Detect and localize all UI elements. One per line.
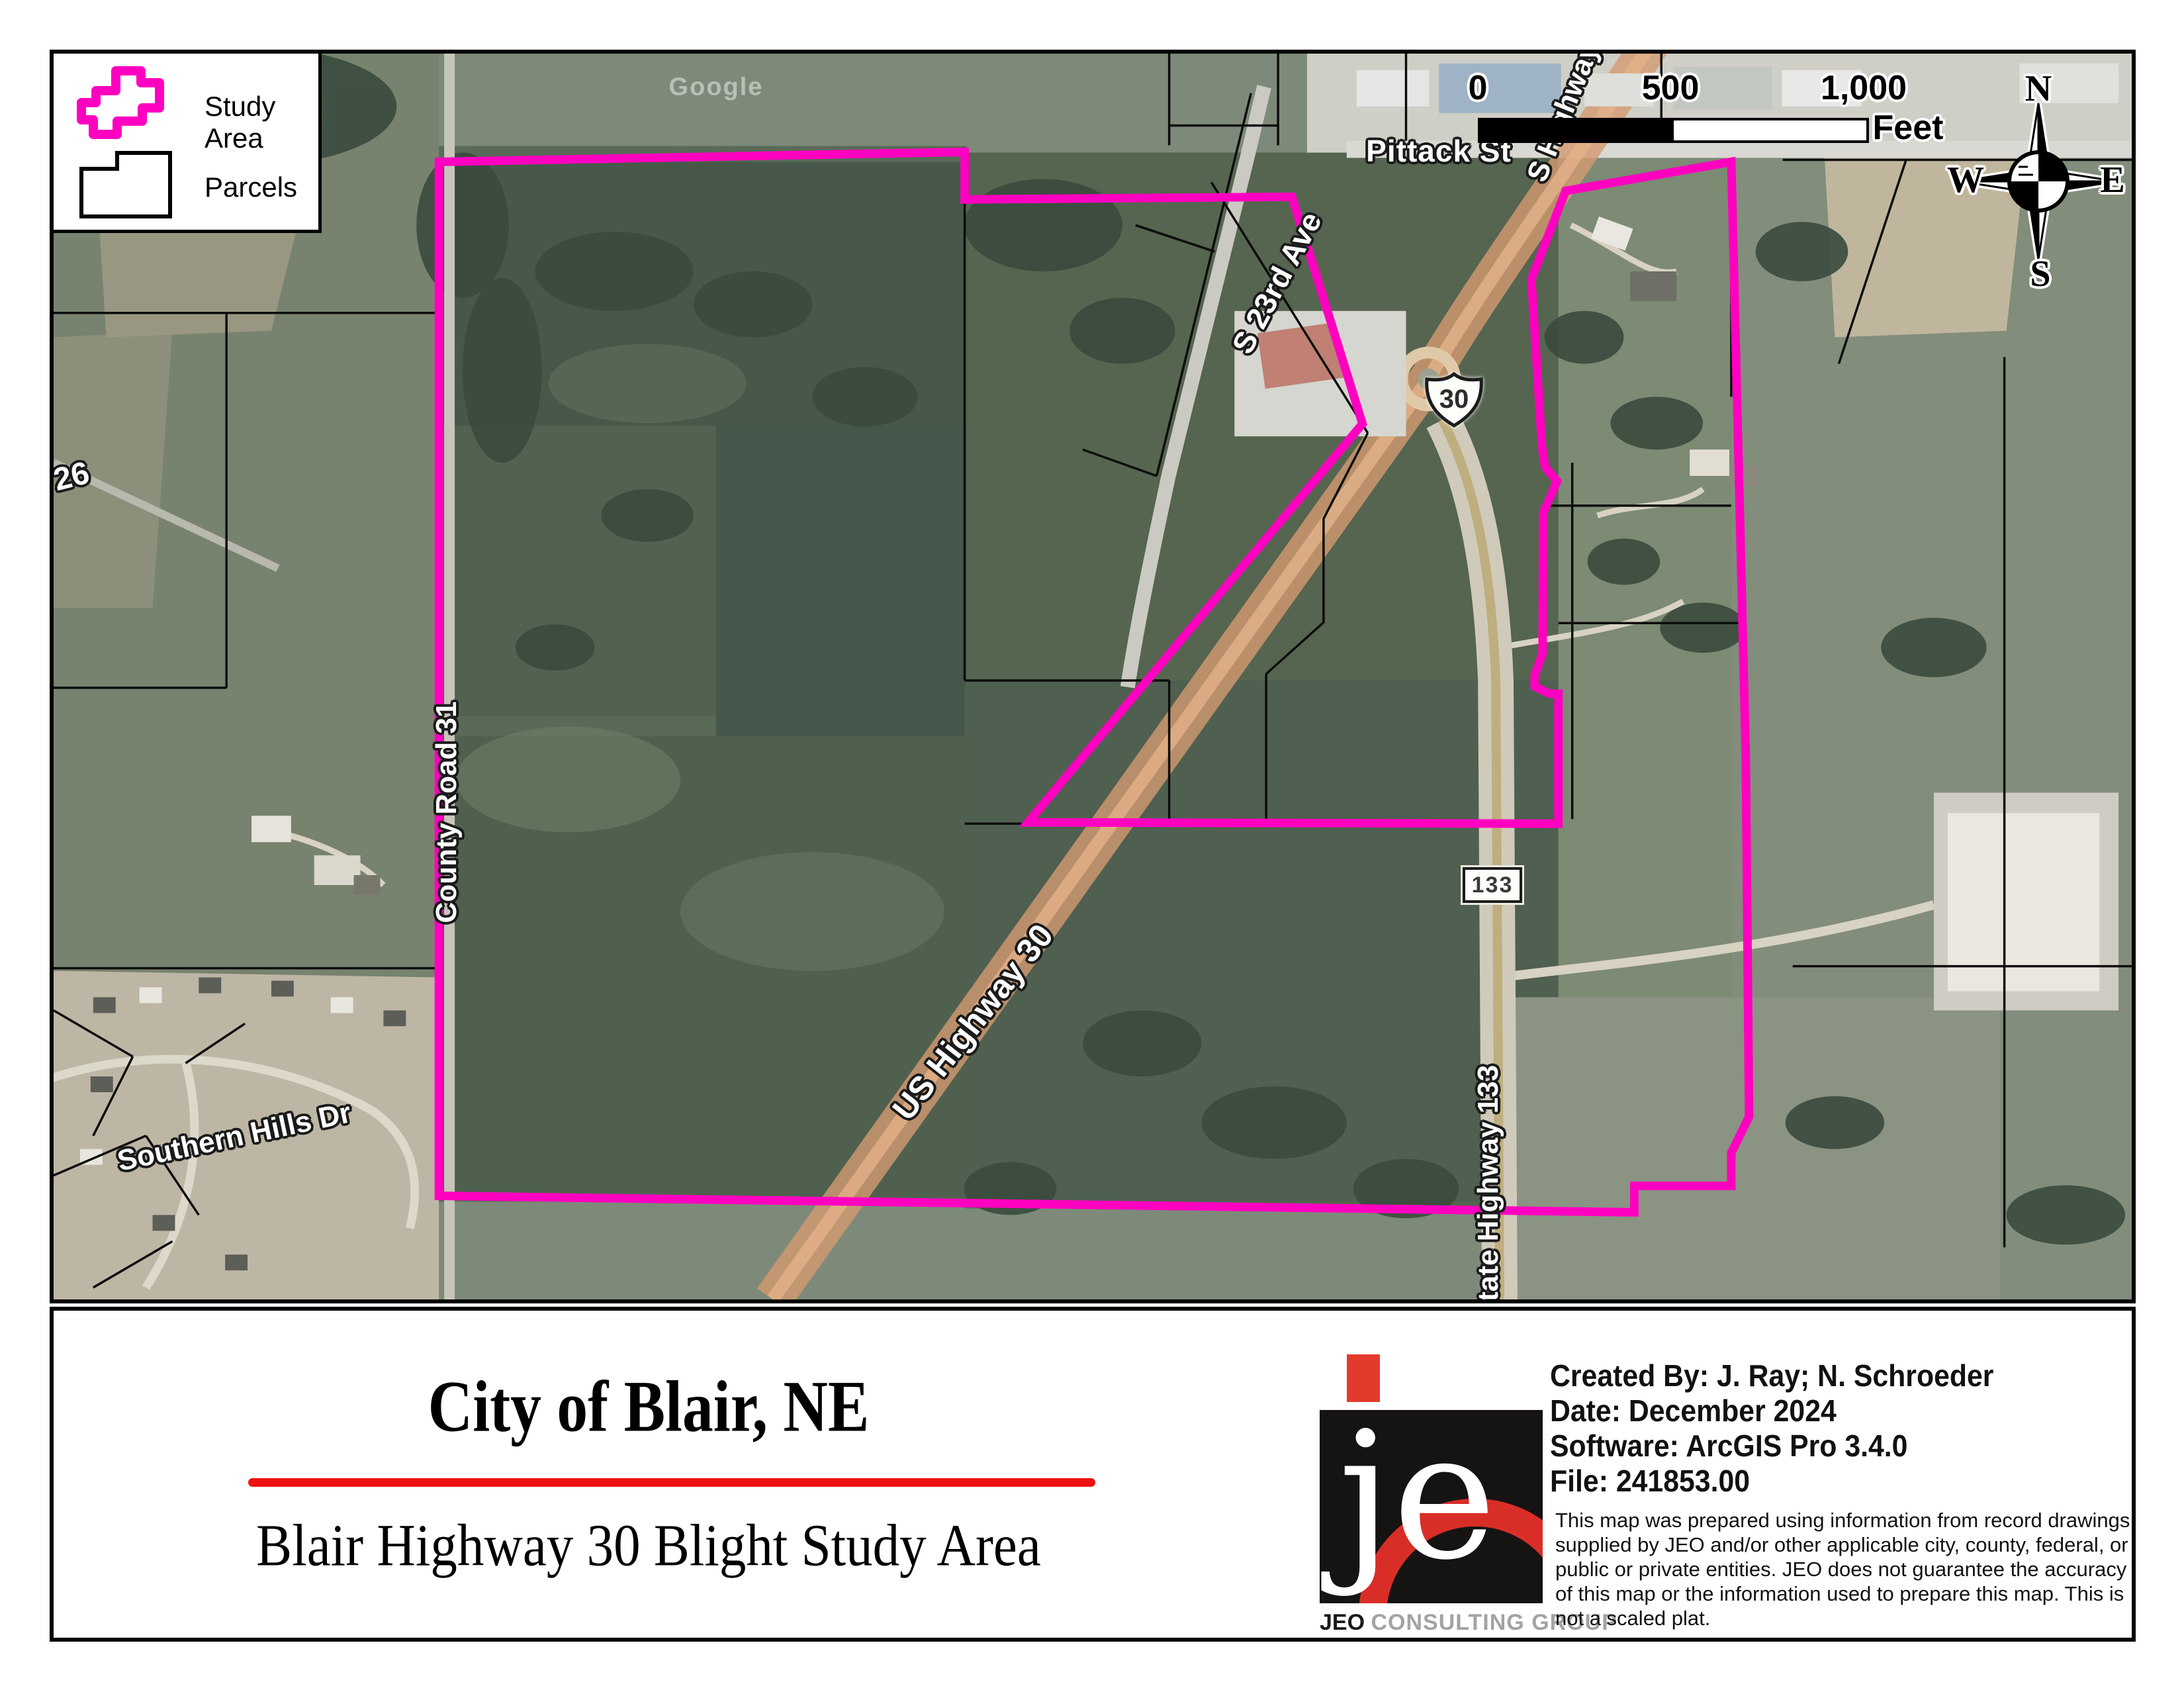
parcels-legend-icon <box>67 146 199 226</box>
svg-text:je: je <box>1320 1410 1496 1599</box>
map-sheet: Google S Highway 30 Pittack St S 23rd Av… <box>0 0 2184 1688</box>
scale-unit-label: Feet <box>1873 108 1944 148</box>
scale-tick-1000: 1,000 <box>1821 68 1907 108</box>
jeo-logo-icon: je <box>1320 1410 1543 1603</box>
map-canvas[interactable]: Google S Highway 30 Pittack St S 23rd Av… <box>50 50 2136 1303</box>
credit-file: File: 241853.00 <box>1550 1464 1993 1499</box>
credit-software: Software: ArcGIS Pro 3.4.0 <box>1550 1429 1993 1464</box>
legend: Study Area Parcels <box>54 54 322 233</box>
scale-tick-0: 0 <box>1469 68 1488 108</box>
state-highway-133-shield-icon: 133 <box>1463 867 1522 903</box>
road-label-county-road-31: County Road 31 <box>430 702 463 923</box>
jeo-logo-wordmark: JEO CONSULTING GROUP <box>1320 1610 1543 1636</box>
jeo-logo-red-dot <box>1347 1354 1380 1402</box>
compass-n-label: N <box>2025 68 2052 110</box>
map-title: City of Blair, NE <box>428 1365 870 1449</box>
road-label-state-highway-133: State Highway 133 <box>1472 1065 1505 1303</box>
disclaimer-text: This map was prepared using information … <box>1555 1508 2138 1630</box>
credit-date: Date: December 2024 <box>1550 1393 1993 1429</box>
us-route-30-shield-icon: 30 <box>1422 371 1486 429</box>
credit-created-by: Created By: J. Ray; N. Schroeder <box>1550 1358 1993 1393</box>
imagery-watermark: Google <box>669 73 764 102</box>
north-arrow-compass: N E S W <box>1939 72 2136 297</box>
aerial-imagery <box>54 54 2132 1299</box>
scale-bar-rule <box>1478 118 1869 143</box>
compass-e-label: E <box>2100 159 2124 201</box>
study-area-legend-icon <box>67 66 199 145</box>
scale-tick-500: 500 <box>1642 68 1700 108</box>
compass-s-label: S <box>2030 253 2050 295</box>
title-divider-rule <box>248 1478 1095 1487</box>
compass-w-label: W <box>1947 159 1984 201</box>
credits-block: Created By: J. Ray; N. Schroeder Date: D… <box>1550 1358 1993 1499</box>
legend-parcels-label: Parcels <box>205 171 297 203</box>
jeo-logo-name: JEO <box>1320 1610 1365 1635</box>
legend-study-area-label: Study Area <box>205 91 318 154</box>
map-subtitle: Blair Highway 30 Blight Study Area <box>256 1512 1041 1580</box>
